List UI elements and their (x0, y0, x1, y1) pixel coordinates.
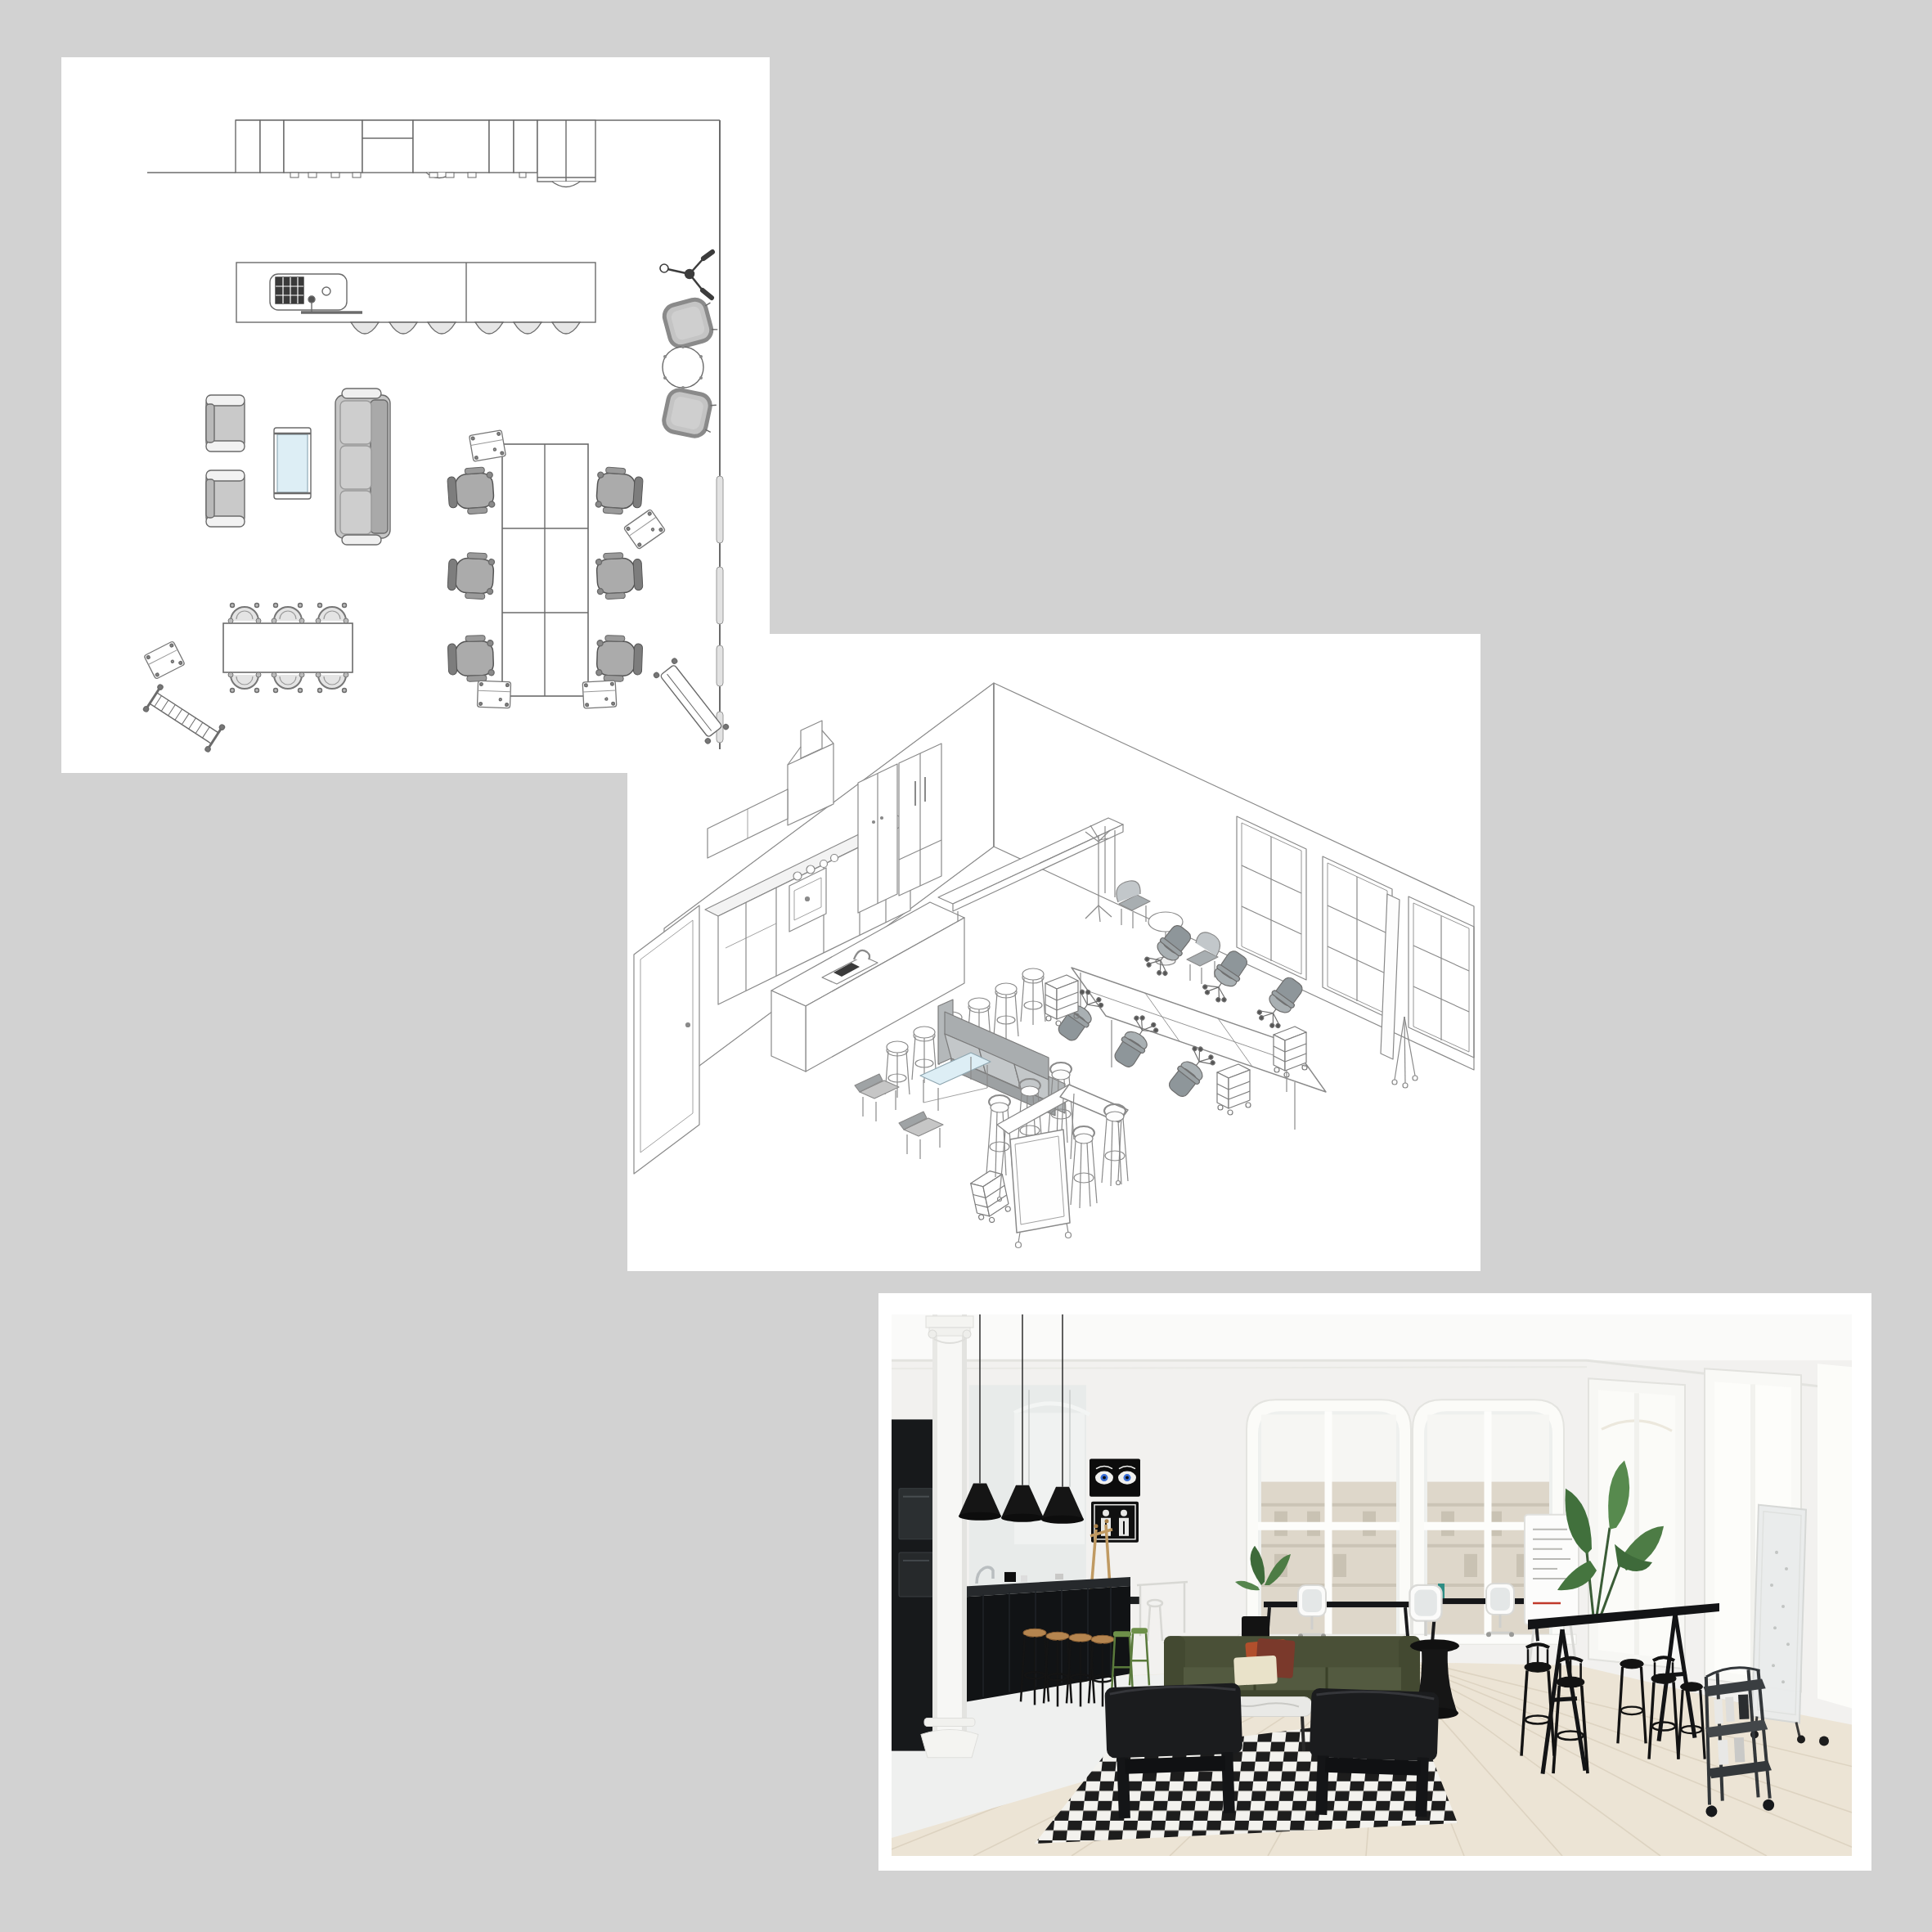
plan-cafe-chair-2 (662, 388, 718, 439)
plan-sofa (335, 389, 390, 545)
plan-armchair-2 (206, 470, 245, 527)
plan-sink (276, 277, 303, 303)
plan-armchair-1 (206, 395, 245, 452)
plan-wall-cabinets (236, 120, 595, 187)
floor-plan-panel (61, 57, 770, 773)
render-photo (892, 1314, 1852, 1856)
plan-dining-table (223, 623, 353, 672)
plan-project-table (502, 444, 588, 696)
iso-partition (1010, 1130, 1072, 1248)
plan-bench (142, 684, 225, 753)
design-board (0, 0, 1932, 1932)
plan-coat-stand (660, 252, 712, 298)
photo-black-stool (1242, 1616, 1269, 1638)
plan-round-table (663, 347, 703, 388)
render-photo-panel (878, 1293, 1871, 1871)
plan-cafe-chair-1 (662, 295, 719, 348)
iso-door (634, 905, 699, 1174)
iso-armchair-2 (899, 1112, 943, 1159)
photo-eyes-artwork (1090, 1459, 1140, 1497)
floor-plan-drawing (61, 57, 770, 773)
photo-figures-artwork (1091, 1502, 1139, 1543)
photo-oven-2 (899, 1552, 933, 1597)
photo-ceiling (892, 1314, 1852, 1360)
plan-coffee-table (274, 428, 311, 499)
plan-kitchen-island (236, 263, 595, 322)
photo-arched-window-1 (1238, 1400, 1420, 1644)
plan-counter-stools (351, 322, 580, 334)
